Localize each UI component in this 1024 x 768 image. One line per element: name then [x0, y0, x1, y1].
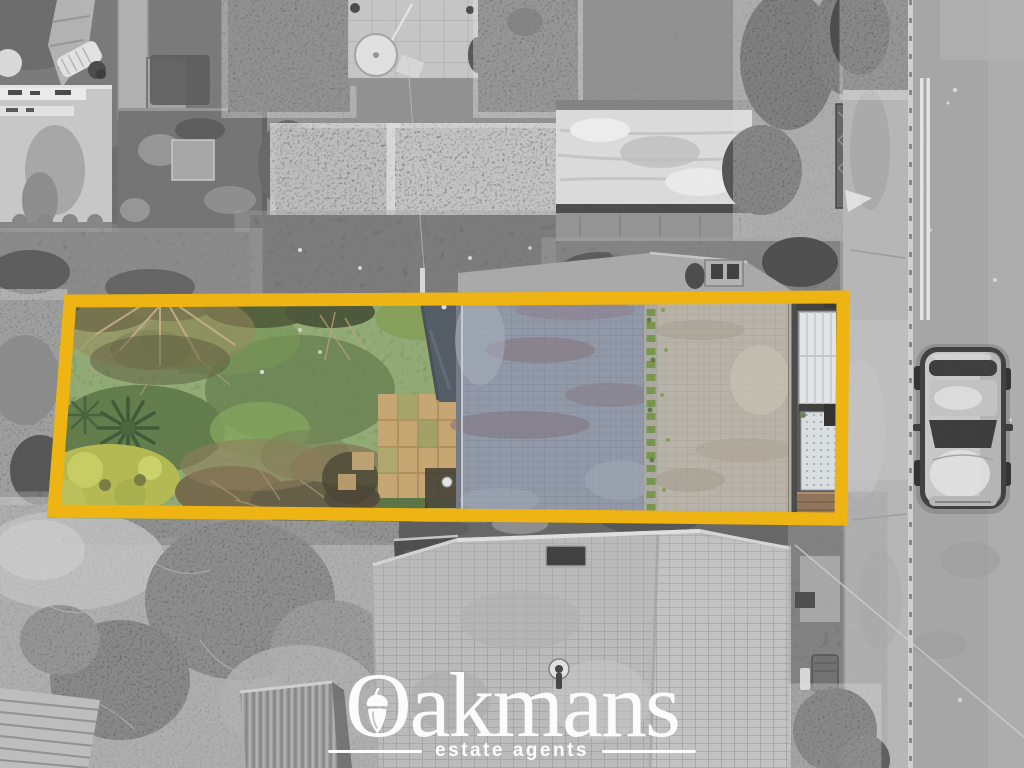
- aerial-photo: O akmans estate agents: [0, 0, 1024, 768]
- aerial-photo-canvas: [0, 0, 1024, 768]
- photo-grain: [0, 0, 1024, 768]
